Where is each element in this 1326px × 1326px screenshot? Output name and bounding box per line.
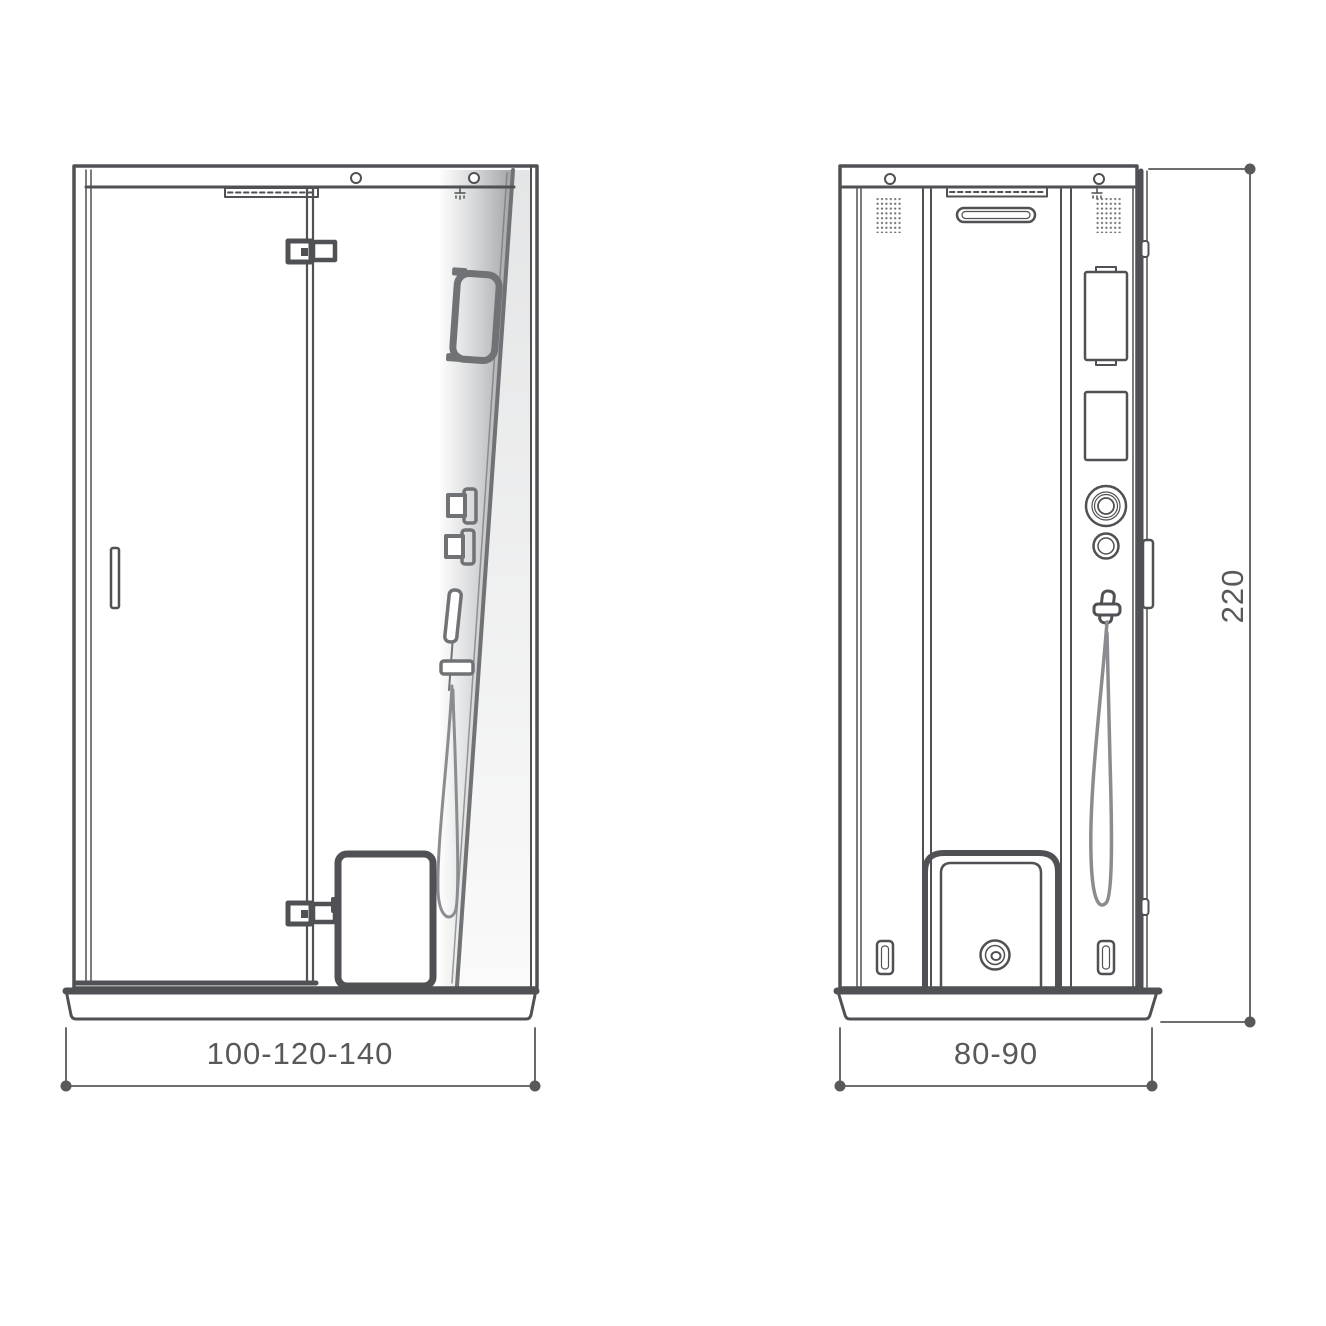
mounting-hole-icon bbox=[1094, 174, 1104, 184]
front-view bbox=[66, 166, 537, 1019]
door-handle bbox=[111, 548, 119, 608]
mixer-dial-small bbox=[1094, 534, 1119, 559]
control-panel-upper bbox=[1085, 267, 1127, 365]
mounting-hole-icon bbox=[469, 173, 479, 183]
shower-tray bbox=[66, 991, 536, 1019]
front-width-label: 100-120-140 bbox=[207, 1036, 394, 1071]
floor-fitting-right bbox=[1098, 941, 1114, 974]
hand-shower-side bbox=[1091, 590, 1120, 905]
shower-cabin-diagram: 100-120-140 80-90 220 bbox=[0, 0, 1326, 1326]
seat bbox=[331, 854, 433, 986]
speaker-grille-icon bbox=[876, 198, 901, 233]
rain-shower-head bbox=[225, 188, 318, 197]
height-label: 220 bbox=[1215, 569, 1250, 624]
front-width-dimension: 100-120-140 bbox=[61, 1028, 541, 1092]
mounting-hole-icon bbox=[351, 173, 361, 183]
door-hinge-bottom bbox=[288, 903, 335, 924]
shower-hose bbox=[1091, 622, 1112, 905]
mixer-dial-large bbox=[1086, 486, 1126, 526]
height-dimension: 220 bbox=[1149, 164, 1256, 1028]
rain-shower-head-side bbox=[957, 208, 1035, 222]
rain-shower-mount bbox=[947, 188, 1047, 197]
floor-fitting-left bbox=[877, 941, 893, 974]
door-handle-side bbox=[1143, 540, 1153, 608]
speaker-grille-icon bbox=[1096, 198, 1121, 233]
door-hinge-top bbox=[288, 241, 335, 262]
side-depth-dimension: 80-90 bbox=[835, 1028, 1158, 1092]
wall-clip-bottom bbox=[1142, 899, 1149, 915]
control-panel-lower bbox=[1085, 392, 1127, 460]
door-panel bbox=[76, 189, 316, 983]
side-view bbox=[837, 166, 1159, 1019]
mounting-hole-icon bbox=[885, 174, 895, 184]
side-depth-label: 80-90 bbox=[954, 1036, 1038, 1071]
technical-drawing-canvas: 100-120-140 80-90 220 bbox=[0, 0, 1326, 1326]
shower-tray-side bbox=[837, 991, 1159, 1019]
wall-clip-top bbox=[1142, 241, 1149, 257]
drain-icon bbox=[981, 941, 1010, 970]
